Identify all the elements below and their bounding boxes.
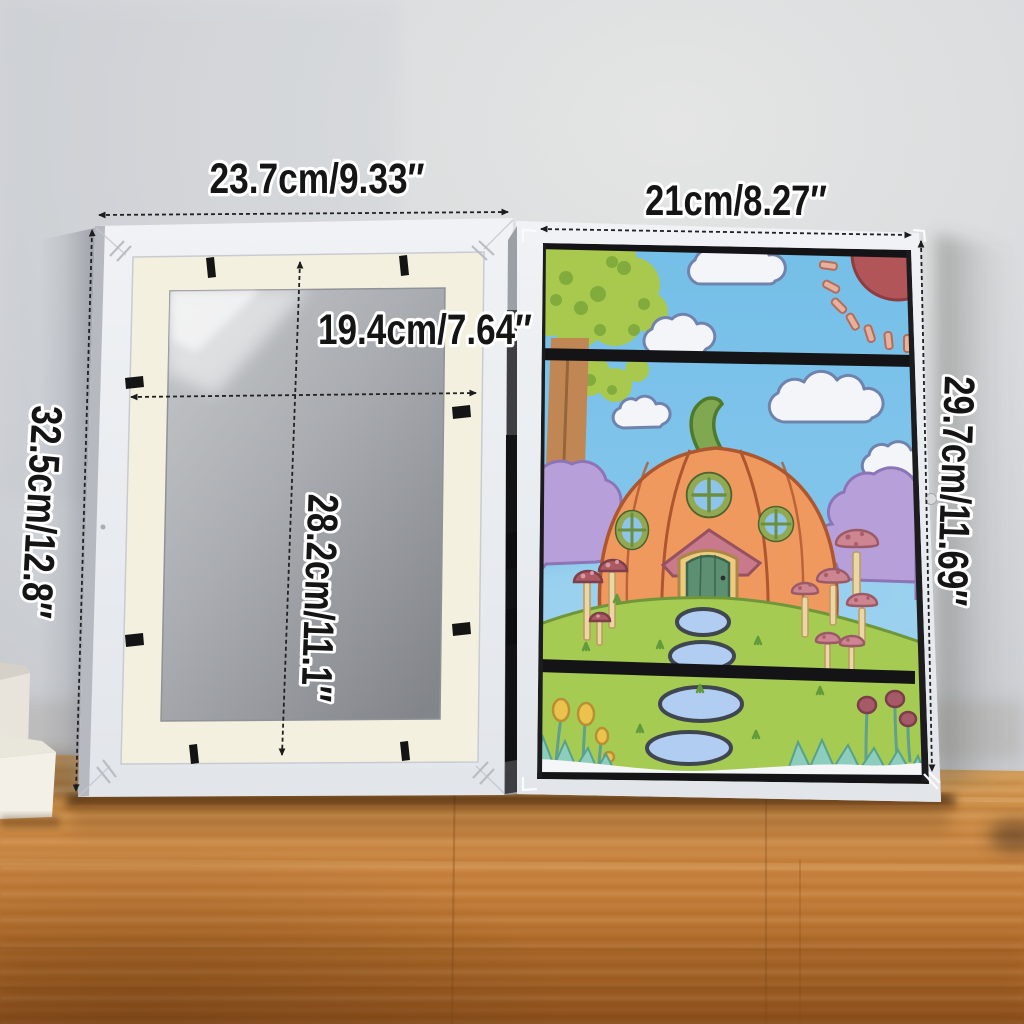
svg-text:29.7cm/11.69″: 29.7cm/11.69″: [927, 375, 983, 607]
svg-text:21cm/8.27″: 21cm/8.27″: [645, 177, 827, 225]
svg-text:19.4cm/7.64″: 19.4cm/7.64″: [318, 306, 532, 354]
svg-text:28.2cm/11.1″: 28.2cm/11.1″: [291, 493, 346, 703]
svg-text:23.7cm/9.33″: 23.7cm/9.33″: [210, 155, 425, 203]
